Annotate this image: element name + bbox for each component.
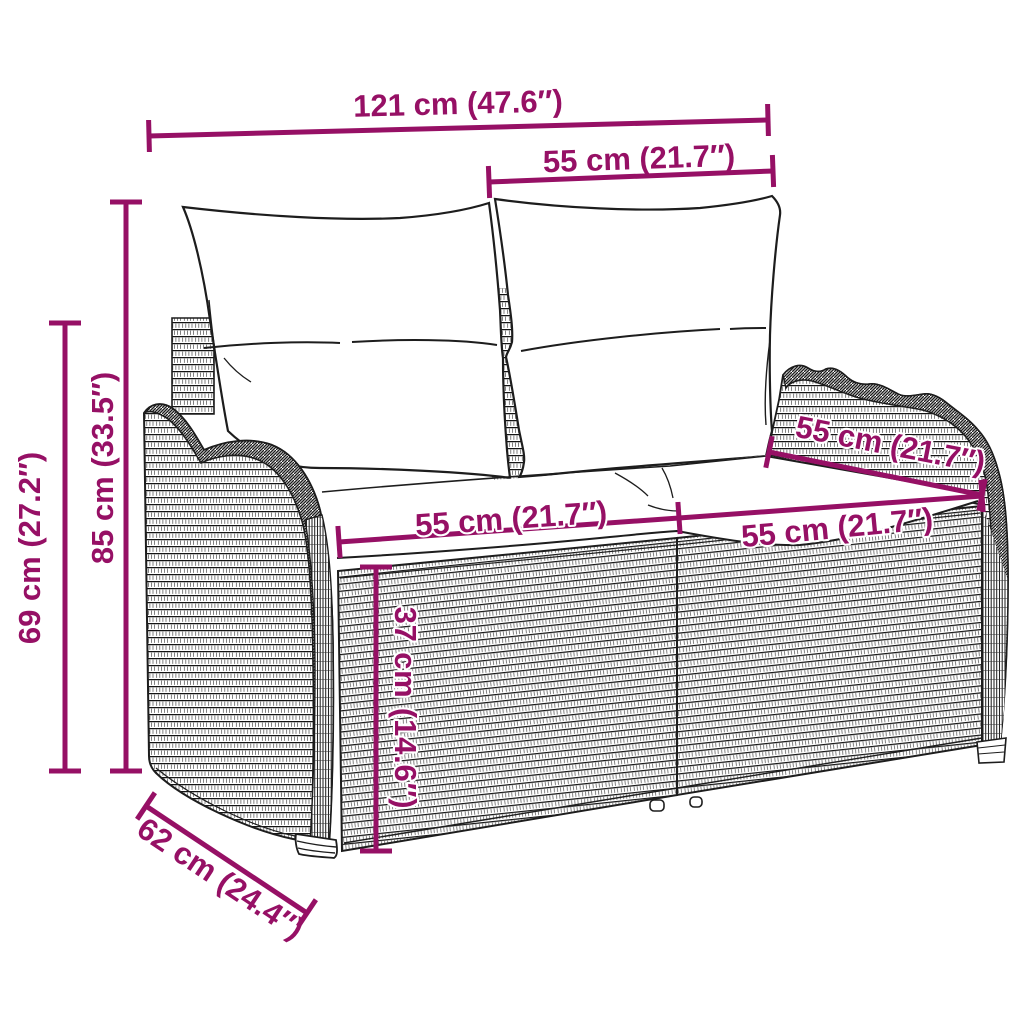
- svg-text:85 cm (33.5″): 85 cm (33.5″): [85, 372, 120, 564]
- svg-text:121 cm (47.6″): 121 cm (47.6″): [353, 83, 563, 123]
- svg-text:69 cm (27.2″): 69 cm (27.2″): [12, 452, 47, 644]
- svg-text:37 cm (14.6″): 37 cm (14.6″): [388, 607, 423, 810]
- svg-text:55 cm (21.7″): 55 cm (21.7″): [542, 138, 735, 180]
